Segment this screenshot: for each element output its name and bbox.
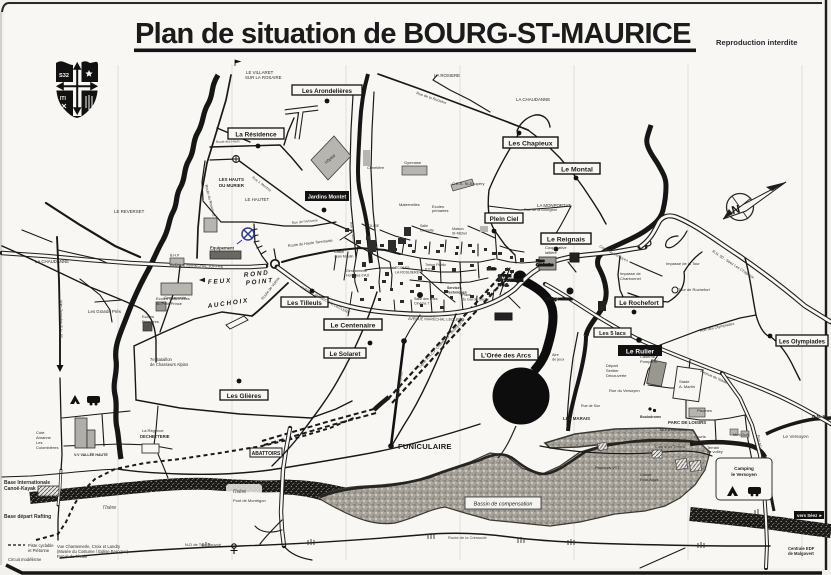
svg-text:Cinéma 7: Cinéma 7 (414, 302, 429, 306)
svg-text:Camping: Camping (734, 466, 754, 471)
svg-text:V.V VALLÉE HAUTE: V.V VALLÉE HAUTE (74, 452, 108, 457)
svg-text:Salle: Salle (420, 224, 428, 228)
svg-text:du Petit Prince: du Petit Prince (156, 301, 183, 306)
svg-text:LE REVERSET: LE REVERSET (114, 209, 145, 214)
svg-text:Courts de Tennis: Courts de Tennis (655, 444, 685, 449)
svg-text:Voie Grenoble R.N. 90: Voie Grenoble R.N. 90 (59, 300, 63, 338)
svg-text:Base départ Rafting: Base départ Rafting (4, 514, 51, 520)
svg-text:le Versoyen: le Versoyen (731, 472, 757, 477)
svg-text:LES HAUTS: LES HAUTS (219, 177, 244, 182)
svg-text:LES MARAIS: LES MARAIS (563, 416, 590, 421)
svg-text:Canoë-Kayak: Canoë-Kayak (4, 486, 36, 492)
svg-text:Maison: Maison (452, 227, 464, 231)
svg-text:ABATTOIRS: ABATTOIRS (252, 451, 281, 457)
svg-text:l'Isère: l'Isère (233, 489, 246, 495)
svg-text:Route des Hauts: Route des Hauts (216, 139, 240, 144)
svg-text:FUNICULAIRE: FUNICULAIRE (398, 442, 452, 451)
svg-text:Cimetière: Cimetière (367, 165, 385, 170)
svg-text:LA CHAUDANNE: LA CHAUDANNE (516, 97, 550, 102)
svg-text:l'Isère: l'Isère (103, 505, 116, 511)
svg-text:Maternelles: Maternelles (399, 202, 420, 207)
svg-text:Boulodrome: Boulodrome (640, 415, 661, 419)
svg-text:Le Rochefort: Le Rochefort (619, 300, 659, 307)
svg-text:de Malgovert: de Malgovert (788, 551, 814, 556)
svg-text:Les Olympiades: Les Olympiades (779, 340, 826, 346)
svg-text:Pout'Aqua: Pout'Aqua (640, 477, 659, 482)
svg-text:Les Chapieux: Les Chapieux (508, 141, 552, 148)
svg-text:A. Martin: A. Martin (679, 384, 695, 389)
svg-text:Equipement: Equipement (210, 246, 235, 251)
svg-text:EGLISE: EGLISE (366, 224, 380, 228)
svg-text:Rue du Versoyen: Rue du Versoyen (609, 388, 640, 393)
svg-text:PARC DE LOISIRS: PARC DE LOISIRS (668, 420, 706, 425)
svg-text:St-Michel: St-Michel (452, 232, 467, 236)
svg-text:laitière: laitière (545, 250, 558, 255)
svg-text:LE HAUTET: LE HAUTET (245, 197, 269, 202)
svg-text:Plein Ciel: Plein Ciel (490, 216, 519, 223)
svg-text:La Résidence: La Résidence (235, 132, 277, 139)
svg-text:Pont de Montrigon: Pont de Montrigon (233, 498, 266, 503)
svg-text:du Gal de Gaulle: du Gal de Gaulle (462, 298, 489, 302)
svg-text:Castel: Castel (334, 250, 344, 254)
svg-text:et Piétonne: et Piétonne (28, 548, 50, 553)
svg-text:Le Solaret: Le Solaret (330, 351, 362, 358)
svg-text:Le Montal: Le Montal (561, 167, 593, 174)
svg-text:Les Grands Prés: Les Grands Prés (88, 309, 122, 314)
svg-text:de volley: de volley (707, 449, 723, 454)
svg-text:de Tennis: de Tennis (694, 439, 711, 444)
svg-text:Découverte: Découverte (606, 373, 627, 378)
svg-text:P.T.T.: P.T.T. (425, 268, 434, 272)
svg-text:R.N. 90: R.N. 90 (812, 414, 828, 419)
svg-text:C.E.S. St-Exupéry: C.E.S. St-Exupéry (452, 181, 484, 186)
svg-text:B.H.P: B.H.P (170, 254, 180, 258)
svg-text:LA ROSUIERE: LA ROSUIERE (395, 271, 420, 275)
svg-text:Gendarmerie: Gendarmerie (346, 269, 367, 273)
svg-text:Aire: Aire (552, 353, 559, 357)
svg-text:Trésor Public: Trésor Public (425, 263, 446, 267)
svg-text:de jeux: de jeux (552, 358, 564, 362)
svg-text:Pompiers: Pompiers (640, 359, 657, 364)
svg-text:SUR LA ROSAIRE: SUR LA ROSAIRE (245, 75, 282, 80)
svg-text:Colombières: Colombières (36, 445, 58, 450)
svg-text:primaires: primaires (432, 208, 448, 213)
svg-text:ITI: ITI (60, 96, 66, 102)
svg-text:Grenette: Grenette (420, 229, 434, 233)
svg-text:DU MURIER: DU MURIER (219, 183, 245, 188)
svg-text:Charbonnel: Charbonnel (620, 276, 641, 281)
svg-text:Mur d'escalade: Mur d'escalade (660, 427, 688, 432)
svg-text:LA ROSIERE: LA ROSIERE (434, 73, 460, 78)
svg-text:DECHETTERIE: DECHETTERIE (140, 434, 170, 439)
svg-text:Jardins Montet: Jardins Montet (308, 195, 347, 201)
svg-text:Jean Moulin: Jean Moulin (334, 255, 353, 259)
svg-text:Les 5 lacs: Les 5 lacs (599, 331, 626, 337)
svg-text:L'Orée des Arcs: L'Orée des Arcs (481, 353, 531, 360)
svg-text:Piscines: Piscines (697, 408, 712, 413)
svg-text:vers Séez ►: vers Séez ► (797, 513, 823, 518)
svg-text:Le Versoyen: Le Versoyen (783, 434, 809, 439)
svg-text:Parking souterrain: Parking souterrain (545, 297, 573, 301)
svg-text:Salle des fêtes: Salle des fêtes (414, 297, 438, 301)
svg-text:Reproduction interdite: Reproduction interdite (716, 38, 797, 47)
svg-text:Circuit modélisme: Circuit modélisme (8, 557, 42, 562)
svg-text:Le Centenaire: Le Centenaire (331, 323, 376, 330)
svg-text:Condamine: Condamine (536, 263, 553, 267)
svg-text:S32: S32 (59, 73, 69, 79)
svg-text:Le Reignais: Le Reignais (547, 237, 585, 244)
svg-text:Gendarmerie: Gendarmerie (164, 296, 186, 300)
svg-text:Les Tilleuls: Les Tilleuls (287, 300, 322, 307)
svg-text:Les Glières: Les Glières (227, 393, 262, 400)
svg-text:Parcours VTT: Parcours VTT (595, 465, 620, 470)
svg-text:ECOLES: ECOLES (395, 266, 410, 270)
svg-text:LA CHAUDANNE: LA CHAUDANNE (35, 259, 69, 264)
svg-text:Place: Place (462, 293, 471, 297)
svg-text:de Chasseurs Alpins: de Chasseurs Alpins (150, 362, 188, 367)
svg-text:Tour de Rochefort: Tour de Rochefort (678, 287, 711, 292)
svg-text:Gymnase: Gymnase (404, 160, 422, 165)
svg-text:Hommes d'Azt: Hommes d'Azt (346, 274, 369, 278)
svg-text:Route de la Cressude: Route de la Cressude (448, 535, 487, 540)
svg-text:Services: Services (447, 286, 462, 290)
svg-text:Rue de Son: Rue de Son (581, 404, 600, 408)
svg-text:La Régence: La Régence (142, 428, 164, 433)
svg-text:Rue de la Bourgeat: Rue de la Bourgeat (524, 208, 558, 212)
svg-text:Primaires: Primaires (142, 319, 159, 324)
svg-text:Impasse de la Tour: Impasse de la Tour (666, 261, 700, 266)
svg-text:Les Arondelières: Les Arondelières (302, 88, 353, 95)
svg-text:Parvis de l'école: Parvis de l'école (57, 554, 88, 559)
svg-text:Plan de situation de BOURG-ST-: Plan de situation de BOURG-ST-MAURICE (135, 18, 691, 50)
svg-text:Mini Golf: Mini Golf (733, 432, 750, 437)
svg-text:Bassin de compensation: Bassin de compensation (474, 502, 533, 508)
